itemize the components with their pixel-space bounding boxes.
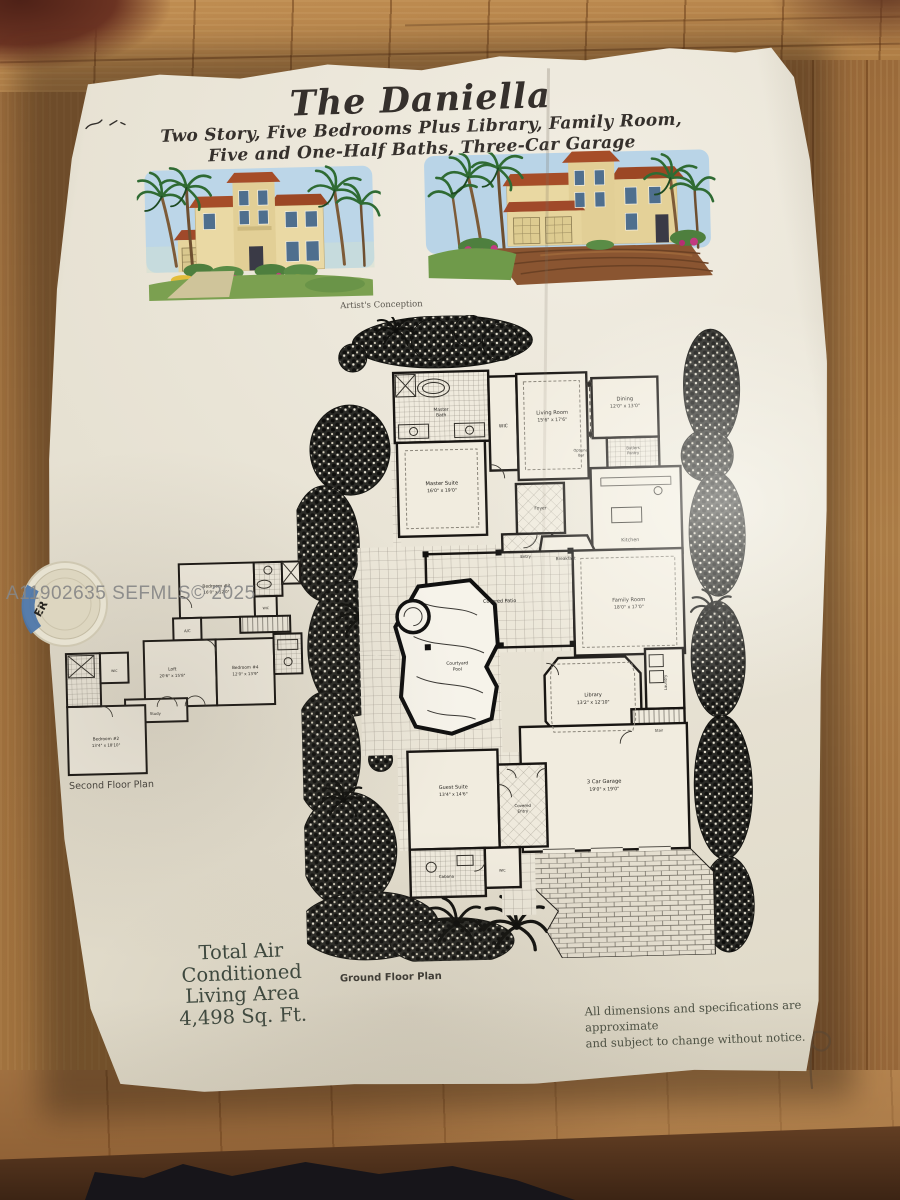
svg-text:13'4" x 18'10": 13'4" x 18'10" (92, 742, 121, 748)
room-label-living: Living Room (536, 410, 568, 417)
room-label-laundry: Laundry (663, 674, 668, 690)
room-label-bedroom4: Bedroom #4 (232, 664, 259, 670)
room-label-master-suite: Master Suite (425, 480, 458, 487)
svg-text:12'0" x 13'0": 12'0" x 13'0" (610, 403, 640, 410)
room-label-pool: Courtyard (446, 660, 468, 667)
svg-text:13'2" x 12'10": 13'2" x 12'10" (577, 699, 610, 706)
room-label-bedroom2: Bedroom #2 (93, 736, 120, 742)
svg-text:Pantry: Pantry (627, 450, 640, 455)
room-label-family: Family Room (612, 597, 645, 604)
total-area-text: Total Air Conditioned Living Area 4,498 … (121, 937, 364, 1031)
svg-text:16'0" x 19'0": 16'0" x 19'0" (427, 487, 457, 494)
room-label-garage: 3 Car Garage (587, 779, 622, 786)
house-rendering-right (418, 147, 718, 291)
second-floor-caption: Second Floor Plan (69, 779, 154, 792)
room-label-master-bath: Master (433, 407, 448, 413)
svg-text:19'0" x 19'0": 19'0" x 19'0" (589, 786, 619, 793)
room-label-covered-patio: Covered Patio (483, 598, 516, 605)
svg-text:Bar: Bar (578, 453, 585, 457)
room-label-study: Study (150, 711, 162, 716)
room-label-kitchen: Kitchen (621, 537, 639, 543)
room-label-wic2: WIC (499, 868, 506, 872)
svg-text:12'0" x 13'9": 12'0" x 13'9" (232, 671, 258, 677)
mls-watermark: A11902635 SEFMLS© 2025 (6, 583, 256, 605)
svg-text:18'0" x 17'0": 18'0" x 17'0" (614, 604, 644, 611)
svg-text:20'6" x 15'8": 20'6" x 15'8" (159, 673, 185, 679)
room-label-ac: A/C (184, 628, 191, 633)
svg-text:Pool: Pool (453, 666, 462, 672)
svg-text:Entry: Entry (517, 808, 528, 813)
room-label-cabana: Cabana (439, 874, 455, 879)
svg-text:13'4" x 14'6": 13'4" x 14'6" (439, 791, 468, 798)
pen-scribble-mark (83, 113, 138, 136)
photo-of-flyer-on-wood-floor: The Daniella Two Story, Five Bedrooms Pl… (0, 0, 900, 1200)
room-label-breakfast: Breakfast (556, 556, 576, 561)
svg-text:15'6" x 17'6": 15'6" x 17'6" (537, 417, 567, 424)
room-label-optional-bar: Optional (573, 448, 588, 452)
svg-text:Bath: Bath (436, 412, 447, 418)
room-label-wic2f: WIC (111, 669, 118, 673)
room-label-stair: Stair (655, 729, 664, 733)
room-label-library: Library (584, 692, 602, 698)
room-label-covered-entry: Covered (514, 803, 531, 808)
room-label-dining: Dining (616, 396, 633, 402)
room-label-entry: Entry (520, 554, 531, 559)
room-label-wic3: WIC (263, 606, 270, 610)
flyer-paper: The Daniella Two Story, Five Bedrooms Pl… (29, 41, 844, 1105)
room-label-wic: WIC (499, 423, 508, 429)
pen-loop-mark (800, 1028, 842, 1092)
house-rendering-left (136, 161, 383, 306)
room-label-loft: Loft (168, 666, 177, 672)
room-label-guest: Guest Suite (439, 784, 468, 791)
ground-floor-plan: Master Bath WIC Living Room 15'6" x 17'6… (292, 308, 758, 964)
